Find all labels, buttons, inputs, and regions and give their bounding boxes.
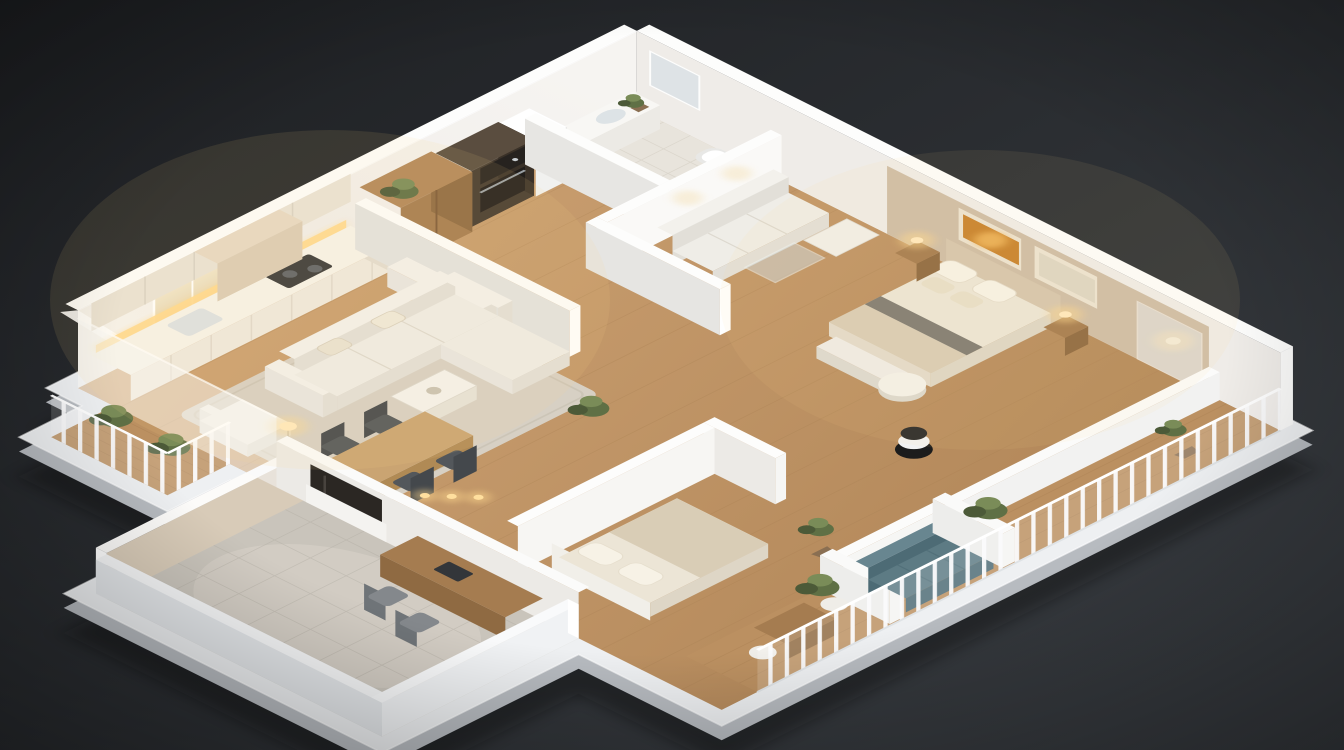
- isometric-floorplan-svg: [0, 0, 1344, 750]
- floorplan-render-stage: [0, 0, 1344, 750]
- light-overlays: [0, 0, 1344, 750]
- vignette: [0, 0, 1344, 750]
